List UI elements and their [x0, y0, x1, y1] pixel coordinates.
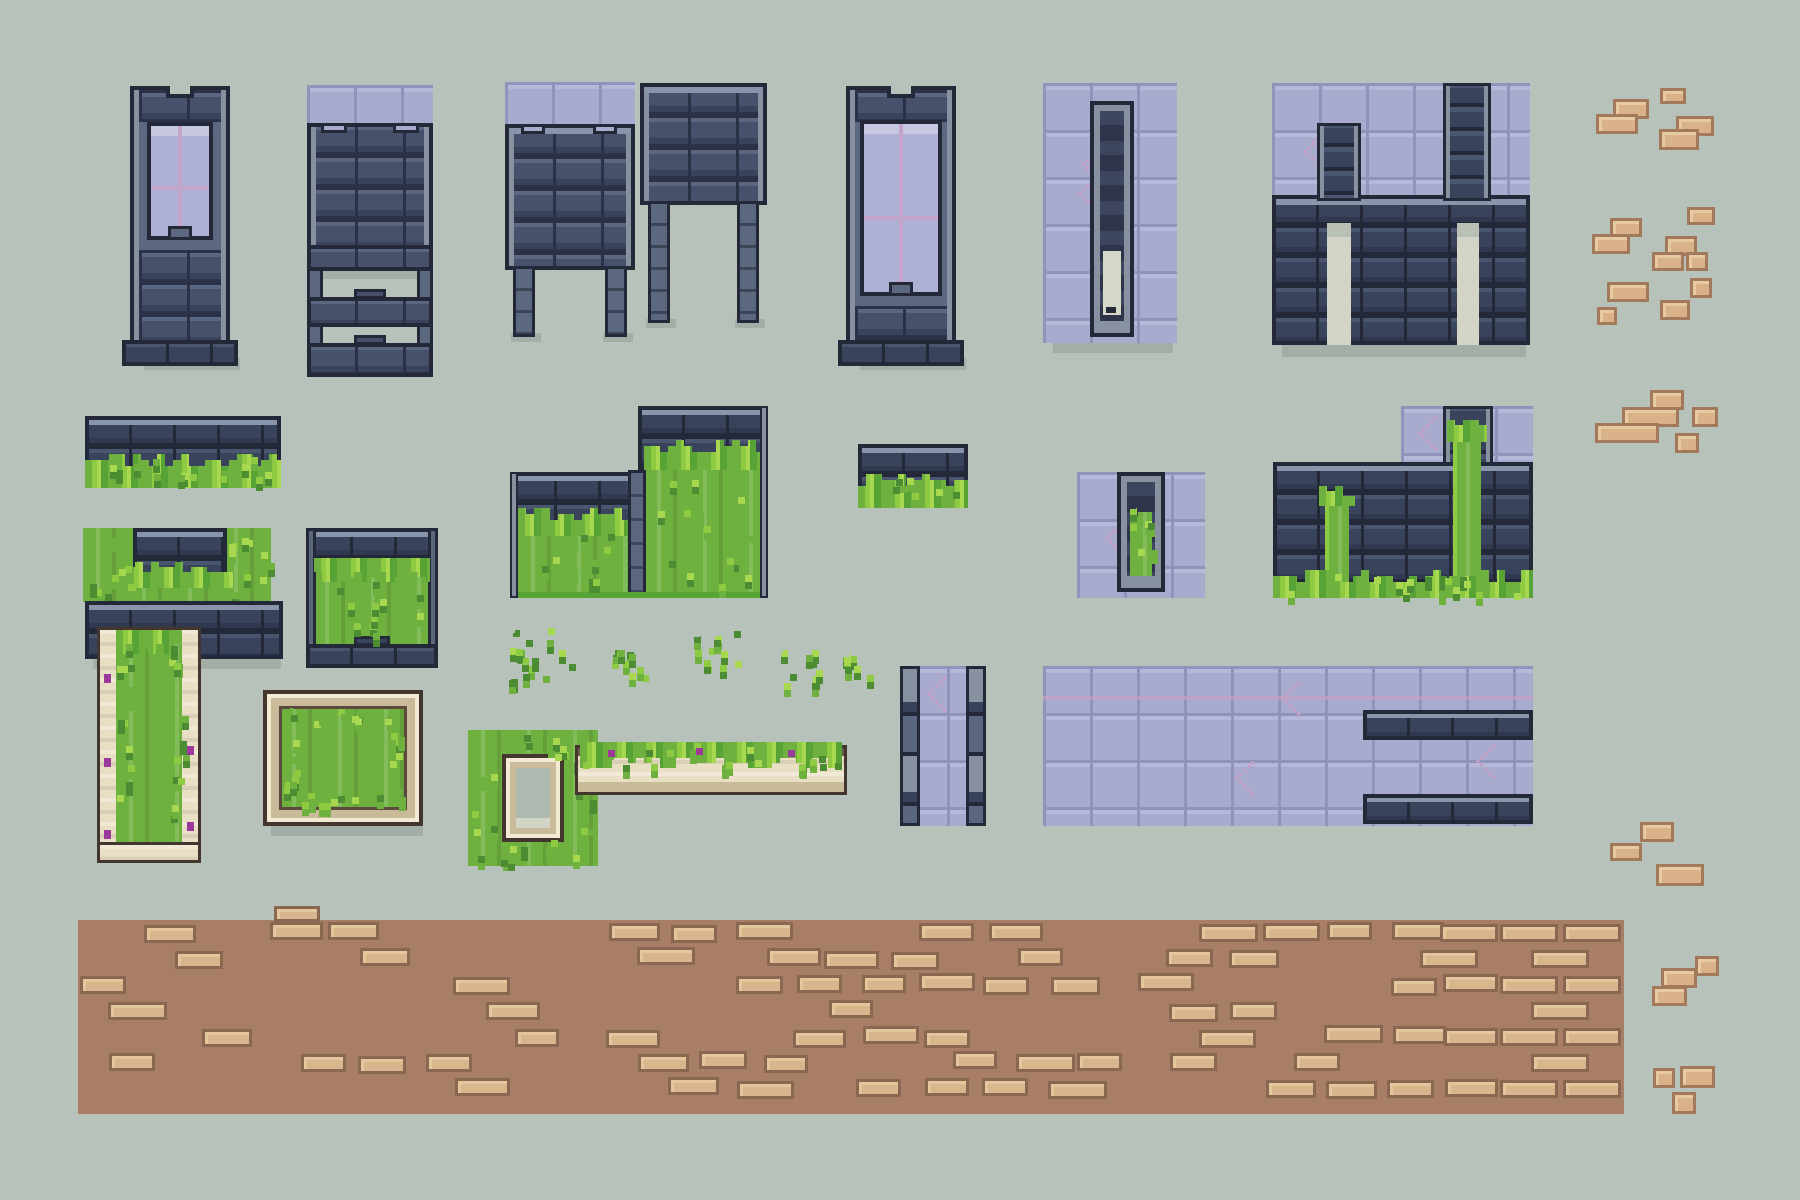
loose-brick — [1592, 234, 1630, 254]
loose-brick — [1661, 968, 1697, 988]
loose-brick — [1686, 252, 1708, 271]
loose-brick — [1610, 843, 1642, 861]
loose-brick — [1660, 88, 1686, 104]
loose-brick — [1672, 1092, 1696, 1114]
loose-brick — [1652, 252, 1684, 271]
loose-brick — [1659, 129, 1699, 150]
loose-brick — [1640, 822, 1674, 842]
loose-brick — [1690, 278, 1712, 298]
loose-brick — [1660, 300, 1690, 320]
loose-brick — [1607, 282, 1649, 302]
loose-brick — [1595, 423, 1659, 443]
loose-brick — [1652, 986, 1687, 1006]
loose-brick — [1596, 114, 1638, 134]
loose-brick — [1692, 407, 1718, 427]
pixel-tileset-sheet — [0, 0, 1800, 1200]
loose-bricks — [0, 0, 1800, 1200]
loose-brick — [1656, 864, 1704, 886]
loose-brick — [1687, 207, 1715, 225]
loose-brick — [1597, 307, 1617, 325]
loose-brick — [1675, 433, 1699, 453]
loose-brick — [1695, 956, 1719, 976]
loose-brick — [1653, 1068, 1675, 1088]
loose-brick — [1680, 1066, 1715, 1088]
